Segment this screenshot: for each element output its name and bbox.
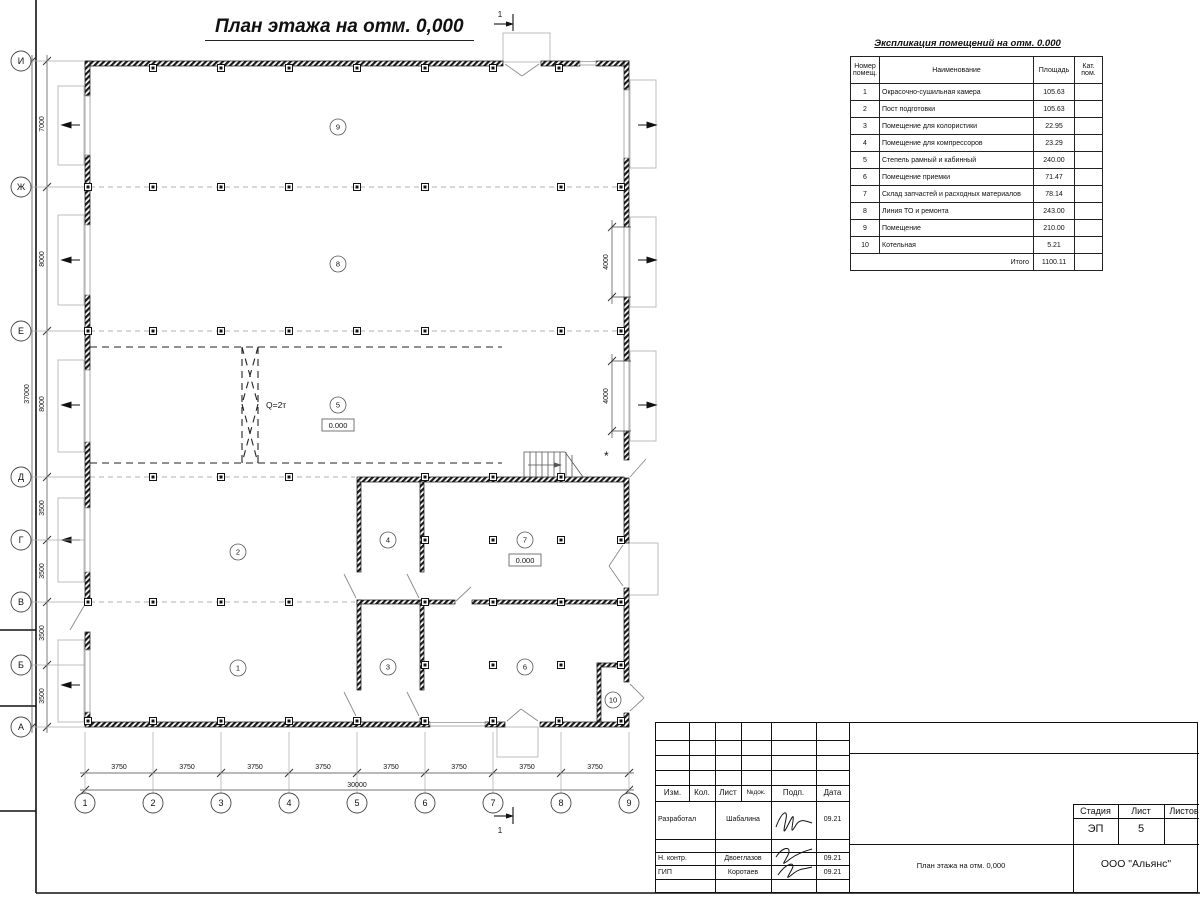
room-cat	[1075, 118, 1103, 135]
room-num: 1	[851, 84, 880, 101]
room-num: 6	[851, 169, 880, 186]
dim-text: 4000	[603, 254, 610, 270]
table-row: 5Степель рамный и кабинный240.00	[851, 152, 1103, 169]
tb-sheets-label: Листов	[1164, 807, 1200, 816]
room-area: 23.29	[1034, 135, 1075, 152]
tb-doc-title: План этажа на отм. 0,000	[849, 862, 1073, 870]
room-cat	[1075, 237, 1103, 254]
room-cat	[1075, 220, 1103, 237]
axis-label: 4	[286, 798, 291, 808]
axis-label: 7	[490, 798, 495, 808]
room-number: 5	[336, 401, 340, 410]
axis-label: Б	[18, 660, 24, 670]
tb-company: ООО "Альянс"	[1073, 859, 1199, 870]
room-number: 2	[236, 548, 240, 557]
room-numbers: 1 2 3 4 5 6 7 8 9 10	[230, 119, 621, 708]
signature-kontr-gip	[772, 841, 816, 885]
room-num: 7	[851, 186, 880, 203]
room-num: 10	[851, 237, 880, 254]
axis-label: 2	[150, 798, 155, 808]
axis-label: Ж	[17, 182, 26, 192]
explication-table: Экспликация помещений на отм. 0.000 Номе…	[850, 38, 1085, 271]
level-mark: 0.000	[516, 556, 535, 565]
dim-text: 3500	[39, 500, 46, 516]
tb-name: Коротаев	[715, 869, 771, 876]
tb-role: Разработал	[658, 816, 715, 823]
room-cat	[1075, 186, 1103, 203]
dim-text: 3750	[247, 764, 263, 771]
axis-label: 3	[218, 798, 223, 808]
room-cat	[1075, 84, 1103, 101]
section-marks: 1 1	[494, 10, 514, 835]
room-number: 9	[336, 123, 340, 132]
room-area: 105.63	[1034, 101, 1075, 118]
tb-header-izm: Изм.	[656, 789, 689, 797]
room-area: 71.47	[1034, 169, 1075, 186]
room-cat	[1075, 169, 1103, 186]
table-row: 3Помещение для колористики22.95	[851, 118, 1103, 135]
col-header-category: Кат. пом.	[1075, 57, 1103, 84]
axis-bubbles: И Ж Е Д Г В Б А 1 2 3 4 5 6 7 8 9	[11, 51, 639, 813]
room-number: 10	[609, 696, 617, 705]
tb-stage-value: ЭП	[1073, 824, 1118, 835]
tb-sheet-value: 5	[1118, 824, 1164, 835]
room-cat	[1075, 152, 1103, 169]
room-name: Котельная	[880, 237, 1034, 254]
explication-title: Экспликация помещений на отм. 0.000	[850, 38, 1085, 49]
dim-text: 3750	[383, 764, 399, 771]
section-mark-label: 1	[498, 10, 503, 19]
room-cat	[1075, 203, 1103, 220]
axis-label: 6	[422, 798, 427, 808]
room-area: 243.00	[1034, 203, 1075, 220]
table-row: 6Помещение приемки71.47	[851, 169, 1103, 186]
room-num: 3	[851, 118, 880, 135]
axis-label: Г	[19, 535, 24, 545]
table-row: 10Котельная5.21	[851, 237, 1103, 254]
tb-date: 09.21	[816, 869, 849, 876]
dim-text: 3750	[451, 764, 467, 771]
section-mark-label: 1	[498, 826, 503, 835]
page-title: План этажа на отм. 0,000	[205, 16, 474, 41]
axis-label: 8	[558, 798, 563, 808]
room-number: 7	[523, 536, 527, 545]
axis-label: 9	[626, 798, 631, 808]
dim-text: 3500	[39, 688, 46, 704]
room-number: 3	[386, 663, 390, 672]
tb-date: 09.21	[816, 816, 849, 823]
table-row: 4Помещение для компрессоров23.29	[851, 135, 1103, 152]
column-markers	[85, 65, 625, 725]
dim-text: 3750	[315, 764, 331, 771]
tb-name: Шабалина	[715, 816, 771, 823]
col-header-area: Площадь	[1034, 57, 1075, 84]
dim-text: 7000	[39, 116, 46, 132]
room-area: 210.00	[1034, 220, 1075, 237]
level-mark: 0.000	[329, 421, 348, 430]
stairs	[524, 452, 583, 477]
tb-header-kol: Кол.	[689, 789, 715, 797]
axis-label: А	[18, 722, 24, 732]
crane-runway	[90, 347, 502, 463]
tb-role: Н. контр.	[658, 855, 715, 862]
room-number: 1	[236, 664, 240, 673]
table-total-row: Итого1100.11	[851, 254, 1103, 271]
dim-text: 3750	[179, 764, 195, 771]
dim-text: 30000	[347, 782, 367, 789]
room-num: 8	[851, 203, 880, 220]
tb-role: ГИП	[658, 869, 715, 876]
room-area: 240.00	[1034, 152, 1075, 169]
total-label: Итого	[851, 254, 1034, 271]
room-area: 5.21	[1034, 237, 1075, 254]
room-name: Помещение для компрессоров	[880, 135, 1034, 152]
tb-date: 09.21	[816, 855, 849, 862]
signature-razrabotal	[772, 803, 816, 841]
room-num: 4	[851, 135, 880, 152]
col-header-number: Номер помещ.	[851, 57, 880, 84]
title-block: Изм. Кол. Лист №док. Подп. Дата Разработ…	[655, 722, 1198, 893]
total-value: 1100.11	[1034, 254, 1075, 271]
room-name: Пост подготовки	[880, 101, 1034, 118]
room-name: Окрасочно-сушильная камера	[880, 84, 1034, 101]
room-name: Помещение	[880, 220, 1034, 237]
tb-header-ndoc: №док.	[741, 790, 771, 797]
table-row: 1Окрасочно-сушильная камера105.63	[851, 84, 1103, 101]
dim-text: 8000	[39, 396, 46, 412]
axis-label: Д	[18, 472, 24, 482]
room-num: 5	[851, 152, 880, 169]
room-name: Линия ТО и ремонта	[880, 203, 1034, 220]
room-area: 105.63	[1034, 84, 1075, 101]
dim-text: 3750	[111, 764, 127, 771]
tb-header-list: Лист	[715, 789, 741, 797]
tb-header-data: Дата	[816, 789, 849, 797]
axis-label: 5	[354, 798, 359, 808]
room-num: 9	[851, 220, 880, 237]
dim-text: 3500	[39, 625, 46, 641]
col-header-name: Наименование	[880, 57, 1034, 84]
asterisk-mark: *	[604, 449, 609, 463]
room-cat	[1075, 254, 1103, 271]
axis-label: И	[18, 56, 24, 66]
room-name: Склад запчастей и расходных материалов	[880, 186, 1034, 203]
room-name: Степель рамный и кабинный	[880, 152, 1034, 169]
room-name: Помещение для колористики	[880, 118, 1034, 135]
table-row: 2Пост подготовки105.63	[851, 101, 1103, 118]
tb-sheet-label: Лист	[1118, 807, 1164, 816]
tb-header-podp: Подп.	[771, 789, 816, 797]
dim-text: 37000	[24, 384, 31, 404]
axis-label: Е	[18, 326, 24, 336]
dim-text: 3750	[587, 764, 603, 771]
dim-text: 8000	[39, 251, 46, 267]
crane-capacity-label: Q=2т	[266, 400, 286, 410]
drawing-sheet: И Ж Е Д Г В Б А 1 2 3 4 5 6 7 8 9 7000 8…	[0, 0, 1200, 900]
dimension-texts: 7000 8000 8000 3500 3500 3500 3500 37000…	[24, 116, 610, 789]
tb-stage-label: Стадия	[1073, 807, 1118, 816]
table-row: 9Помещение210.00	[851, 220, 1103, 237]
room-number: 6	[523, 663, 527, 672]
tb-name: Двоеглазов	[715, 855, 771, 862]
axis-label: В	[18, 597, 24, 607]
table-row: 8Линия ТО и ремонта243.00	[851, 203, 1103, 220]
room-number: 8	[336, 260, 340, 269]
axis-label: 1	[82, 798, 87, 808]
room-cat	[1075, 135, 1103, 152]
dim-text: 3750	[519, 764, 535, 771]
table-row: 7Склад запчастей и расходных материалов7…	[851, 186, 1103, 203]
room-cat	[1075, 101, 1103, 118]
dim-text: 3500	[39, 563, 46, 579]
room-number: 4	[386, 536, 390, 545]
room-name: Помещение приемки	[880, 169, 1034, 186]
room-area: 22.95	[1034, 118, 1075, 135]
room-num: 2	[851, 101, 880, 118]
room-area: 78.14	[1034, 186, 1075, 203]
dim-text: 4000	[603, 388, 610, 404]
